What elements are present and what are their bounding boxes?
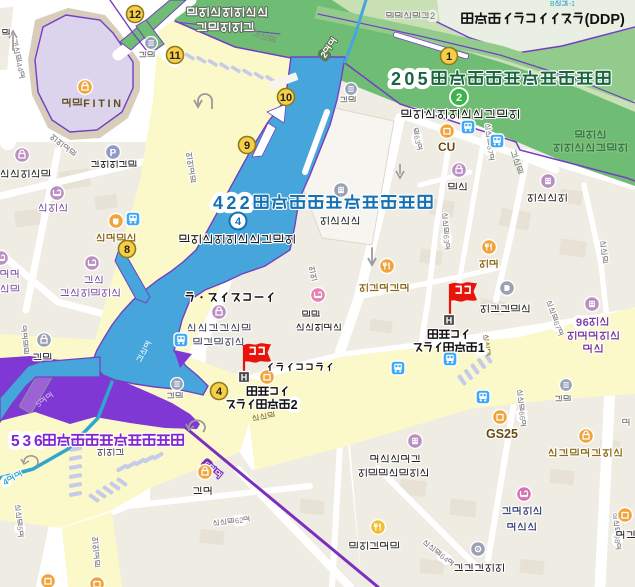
- svg-text:63: 63: [441, 234, 451, 243]
- svg-text:62: 62: [234, 516, 244, 526]
- svg-text:1: 1: [478, 341, 485, 355]
- svg-text:10: 10: [280, 92, 292, 104]
- svg-text:536: 536: [11, 433, 43, 450]
- svg-text:1: 1: [446, 51, 452, 63]
- svg-text:8: 8: [124, 244, 130, 256]
- svg-text:66: 66: [517, 411, 527, 421]
- svg-text:P: P: [110, 148, 117, 159]
- svg-text:12: 12: [129, 9, 141, 21]
- svg-text:B: B: [550, 1, 555, 8]
- svg-text:H: H: [446, 316, 453, 326]
- svg-text:96: 96: [576, 317, 589, 329]
- svg-text:11: 11: [169, 50, 181, 62]
- svg-text:(DDP): (DDP): [585, 12, 625, 28]
- svg-text:GS25: GS25: [486, 427, 518, 441]
- svg-text:205: 205: [391, 69, 428, 89]
- svg-text:4: 4: [216, 386, 223, 398]
- svg-text:4: 4: [235, 216, 242, 228]
- svg-text:2: 2: [456, 92, 462, 104]
- svg-text:-1: -1: [569, 1, 575, 8]
- svg-text:H: H: [241, 373, 248, 383]
- svg-text:CU: CU: [438, 140, 455, 154]
- svg-text:63: 63: [412, 134, 423, 144]
- svg-text:2: 2: [430, 11, 435, 21]
- svg-text:FITIN: FITIN: [83, 98, 121, 110]
- svg-text:2: 2: [291, 398, 298, 412]
- svg-text:422: 422: [213, 193, 250, 213]
- svg-text:9: 9: [244, 140, 250, 152]
